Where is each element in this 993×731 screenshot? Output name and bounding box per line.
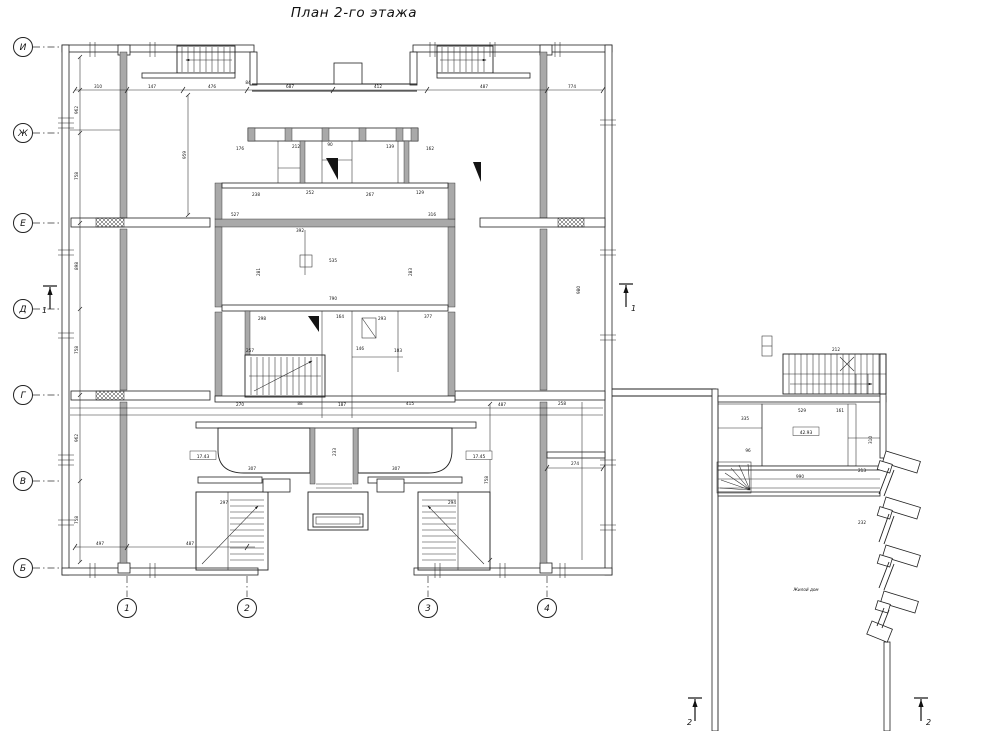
axis-number-label: 2 xyxy=(244,604,250,614)
section-arrow xyxy=(47,288,52,296)
dimension-number: 497 xyxy=(96,541,104,546)
dimension-number: 898 xyxy=(74,262,79,270)
dimension-number: 310 xyxy=(868,436,873,444)
hatched-wall xyxy=(96,391,124,400)
dimension-number: 774 xyxy=(568,84,576,89)
dimension-number: 962 xyxy=(74,434,79,442)
dimension-number: 252 xyxy=(306,190,314,195)
drawing-title: План 2-го этажа xyxy=(291,5,417,21)
section-arrow xyxy=(692,700,697,708)
section-marks: 1122 xyxy=(42,284,931,727)
drawing-sheet: План 2-го этажа ИЖЕДГВБ1234 xyxy=(0,0,993,731)
dimension-number: 232 xyxy=(858,520,866,525)
annex-note-label: Жилой дом xyxy=(792,587,818,592)
section-arrow xyxy=(918,700,923,708)
section-label: 2 xyxy=(687,718,692,727)
axis-letter-label: Б xyxy=(20,564,26,574)
dimension-number: 758 xyxy=(484,476,489,484)
room-label-text: 17.43 xyxy=(197,454,210,460)
dimension-number: 233 xyxy=(332,448,337,456)
dimension-number: 335 xyxy=(741,416,749,421)
bottom-rooms xyxy=(198,428,462,492)
dimension-number: 96 xyxy=(745,448,751,453)
staircase-central xyxy=(245,355,325,397)
axis-letter-label: В xyxy=(20,477,26,487)
dimension-number: 176 xyxy=(236,146,244,151)
section-arrow xyxy=(623,286,628,294)
hatched-wall xyxy=(558,218,584,227)
dimension-number: 213 xyxy=(858,468,866,473)
dimension-number: 487 xyxy=(498,402,506,407)
axis-letter-label: Г xyxy=(20,391,26,401)
dimension-number: 316 xyxy=(428,212,436,217)
dimension-number: 487 xyxy=(186,541,194,546)
dimension-number: 529 xyxy=(798,408,806,413)
core-walls xyxy=(215,141,481,418)
axis-letter-label: Е xyxy=(20,219,26,229)
dimension-number: 281 xyxy=(256,268,261,276)
vent-shaft xyxy=(326,158,338,180)
dimension-number: 161 xyxy=(836,408,844,413)
dimension-number: 257 xyxy=(246,348,254,353)
room-label-text: 42.93 xyxy=(800,430,813,436)
section-label: 1 xyxy=(42,306,47,315)
floor-plan: План 2-го этажа ИЖЕДГВБ1234 xyxy=(0,0,993,731)
dimension-number: 212 xyxy=(832,347,840,352)
hatched-wall xyxy=(96,218,124,227)
dimension-number: 274 xyxy=(571,461,579,466)
dimension-number: 392 xyxy=(296,228,304,233)
section-label: 1 xyxy=(631,304,636,313)
dimension-number: 962 xyxy=(74,106,79,114)
dimension-number: 283 xyxy=(408,268,413,276)
annex-building xyxy=(712,336,890,731)
roof-hatch-box xyxy=(334,63,362,84)
dimension-labels: 3101474768468741248777496275889875896275… xyxy=(74,80,873,546)
dimension-number: 307 xyxy=(392,466,400,471)
vent-shaft xyxy=(473,162,481,182)
dimension-number: 298 xyxy=(258,316,266,321)
dimension-number: 527 xyxy=(231,212,239,217)
dimension-number: 90 xyxy=(327,142,333,147)
porch xyxy=(377,479,404,492)
dimension-number: 758 xyxy=(74,346,79,354)
dimension-number: 147 xyxy=(148,84,156,89)
dimension-number: 103 xyxy=(394,348,402,353)
entrance-canopy xyxy=(308,492,368,530)
dimension-number: 990 xyxy=(796,474,804,479)
axis-letter-label: И xyxy=(20,43,27,53)
axis-markers: ИЖЕДГВБ1234 xyxy=(14,38,557,618)
dimension-number: 267 xyxy=(366,192,374,197)
corridor-link xyxy=(612,389,716,396)
dimension-number: 535 xyxy=(329,258,337,263)
dimension-number: 88 xyxy=(297,401,303,406)
dimension-number: 129 xyxy=(416,190,424,195)
dimension-number: 307 xyxy=(248,466,256,471)
dimension-number: 293 xyxy=(378,316,386,321)
dimension-number: 84 xyxy=(245,80,251,85)
dimension-number: 212 xyxy=(292,144,300,149)
axis-letter-label: Ж xyxy=(17,129,28,139)
axis-number-label: 3 xyxy=(425,604,431,614)
dimension-number: 162 xyxy=(426,146,434,151)
dimension-number: 687 xyxy=(286,84,294,89)
dimension-number: 959 xyxy=(182,151,187,159)
pilaster xyxy=(118,563,130,573)
dimension-number: 238 xyxy=(252,192,260,197)
dimension-number: 310 xyxy=(94,84,102,89)
vent-shaft xyxy=(308,316,319,332)
section-label: 2 xyxy=(926,718,931,727)
dimension-number: 146 xyxy=(356,346,364,351)
axis-number-label: 1 xyxy=(124,604,130,614)
room-label-text: 17.45 xyxy=(473,454,486,460)
dimension-number: 139 xyxy=(386,144,394,149)
pilaster xyxy=(540,563,552,573)
staircase-bottom-left xyxy=(196,492,268,570)
staircase-annex xyxy=(783,354,886,394)
axis-letter-label: Д xyxy=(18,305,26,315)
dimension-number: 487 xyxy=(480,84,488,89)
dimension-number: 294 xyxy=(448,500,456,505)
porch xyxy=(263,479,290,492)
dimension-number: 187 xyxy=(338,402,346,407)
dimension-number: 270 xyxy=(236,402,244,407)
dimension-number: 758 xyxy=(74,516,79,524)
dimension-number: 476 xyxy=(208,84,216,89)
dimension-number: 980 xyxy=(576,286,581,294)
dimension-number: 297 xyxy=(220,500,228,505)
dimension-number: 258 xyxy=(558,401,566,406)
dimension-number: 758 xyxy=(74,172,79,180)
dimension-number: 412 xyxy=(374,84,382,89)
axis-number-label: 4 xyxy=(544,604,550,614)
dimension-number: 790 xyxy=(329,296,337,301)
dimension-number: 415 xyxy=(406,401,414,406)
room-labels: 17.4317.4542.93 xyxy=(190,427,819,460)
dimension-number: 377 xyxy=(424,314,432,319)
dimension-number: 164 xyxy=(336,314,344,319)
